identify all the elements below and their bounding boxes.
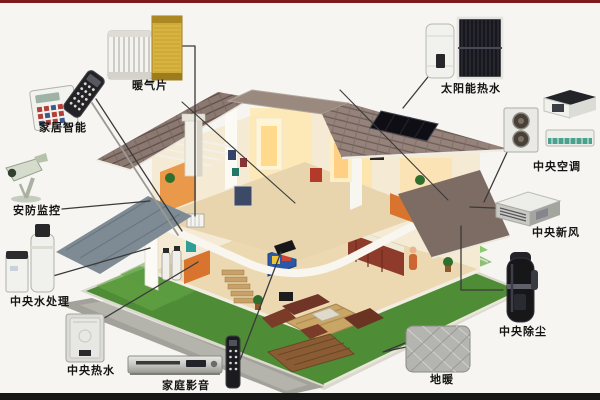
label-solar-water: 太阳能热水 — [432, 83, 510, 96]
device-security-camera — [2, 150, 58, 204]
solar-water-heater-icon — [424, 16, 504, 82]
device-floor-heating — [404, 324, 472, 374]
device-central-vacuum — [498, 250, 542, 328]
device-fresh-air — [490, 190, 564, 228]
label-radiator: 暖气片 — [120, 80, 180, 93]
label-home-theater: 家庭影音 — [153, 380, 219, 393]
label-central-ac: 中央空调 — [524, 161, 590, 174]
label-central-vacuum: 中央除尘 — [490, 326, 556, 339]
device-water-treatment — [4, 222, 58, 296]
fresh-air-unit-icon — [490, 190, 564, 228]
radiator-icon — [106, 14, 184, 82]
smart-home-system-diagram: 暖气片 家居智能 安防监控 中央水处理 中央热水 家庭影音 地暖 中央除尘 中央… — [0, 0, 600, 400]
device-hot-water-boiler — [64, 312, 106, 364]
security-camera-icon — [2, 150, 58, 204]
label-hot-water: 中央热水 — [58, 365, 124, 378]
device-radiator — [106, 14, 184, 82]
central-ac-units-icon — [502, 88, 598, 156]
hot-water-boiler-icon — [64, 312, 106, 364]
label-floor-heating: 地暖 — [424, 374, 460, 387]
device-solar-water — [424, 16, 504, 82]
label-fresh-air: 中央新风 — [523, 227, 589, 240]
central-vacuum-icon — [498, 250, 542, 328]
floor-heating-icon — [404, 324, 472, 374]
label-water-treatment: 中央水处理 — [0, 296, 80, 309]
device-central-ac — [502, 88, 598, 156]
label-security: 安防监控 — [4, 205, 70, 218]
label-smart-home: 家居智能 — [30, 122, 96, 135]
bottom-border-strip — [0, 393, 600, 400]
water-treatment-icon — [4, 222, 58, 296]
